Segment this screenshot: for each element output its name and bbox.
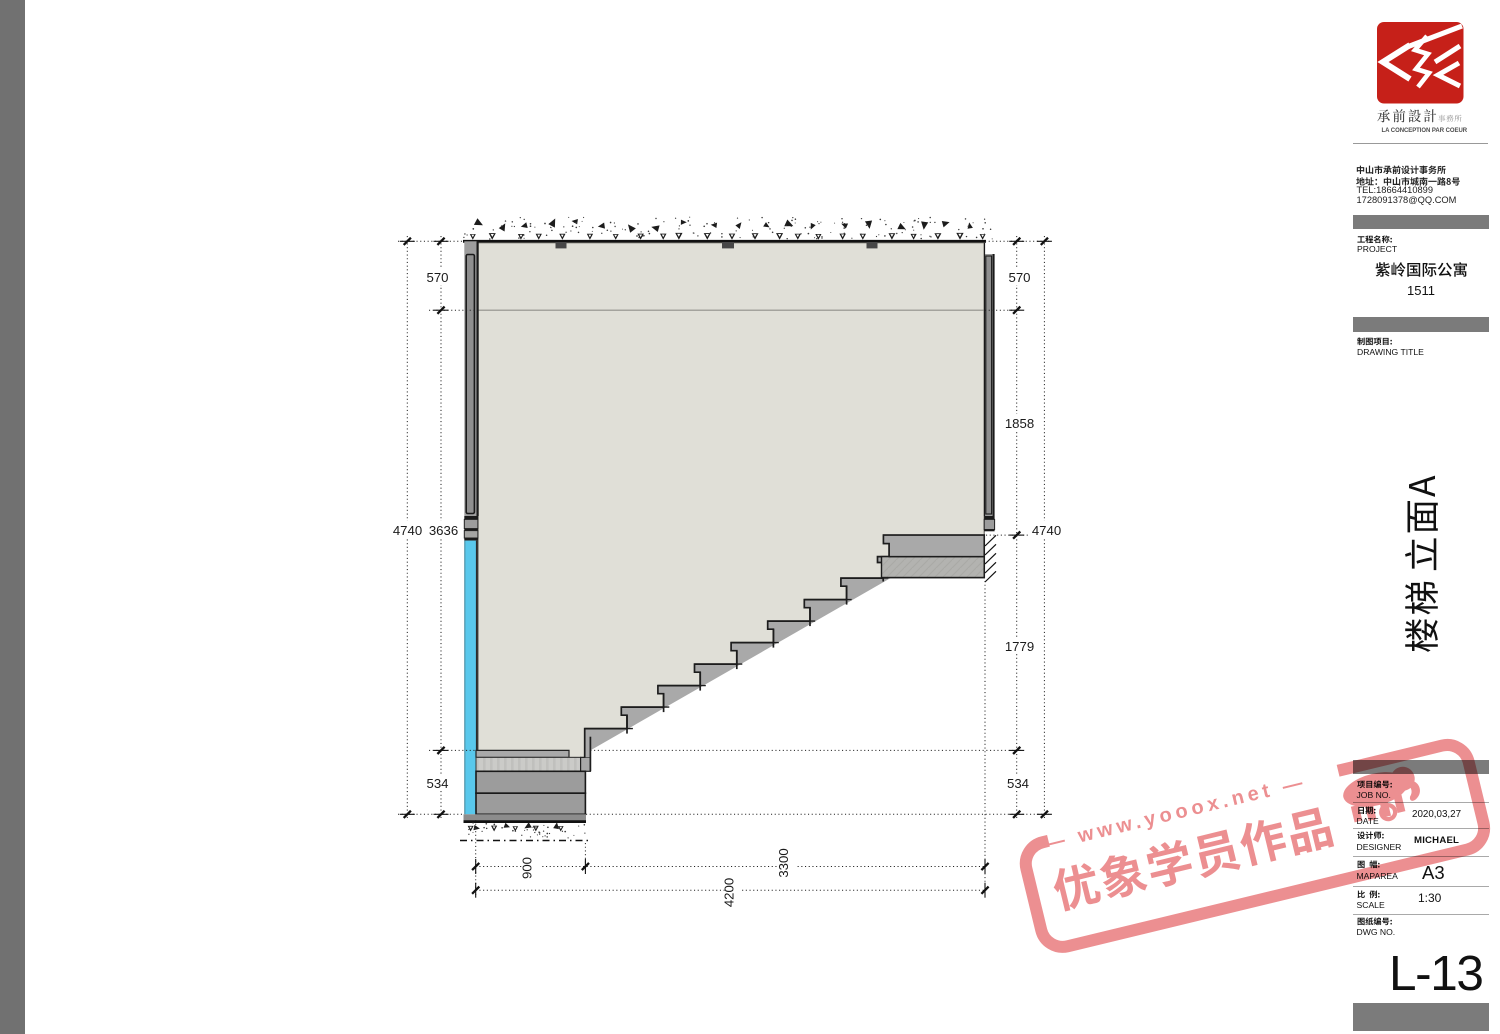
svg-text:3300: 3300 xyxy=(776,848,791,877)
svg-text:570: 570 xyxy=(1008,270,1030,285)
svg-text:570: 570 xyxy=(426,270,448,285)
svg-text:3636: 3636 xyxy=(429,523,458,538)
svg-text:1858: 1858 xyxy=(1005,416,1034,431)
svg-text:4740: 4740 xyxy=(393,523,422,538)
svg-text:534: 534 xyxy=(1007,776,1029,791)
svg-text:4740: 4740 xyxy=(1032,523,1061,538)
svg-text:1779: 1779 xyxy=(1005,639,1034,654)
svg-text:4200: 4200 xyxy=(722,878,737,907)
svg-text:534: 534 xyxy=(426,776,448,791)
svg-text:900: 900 xyxy=(520,857,535,879)
